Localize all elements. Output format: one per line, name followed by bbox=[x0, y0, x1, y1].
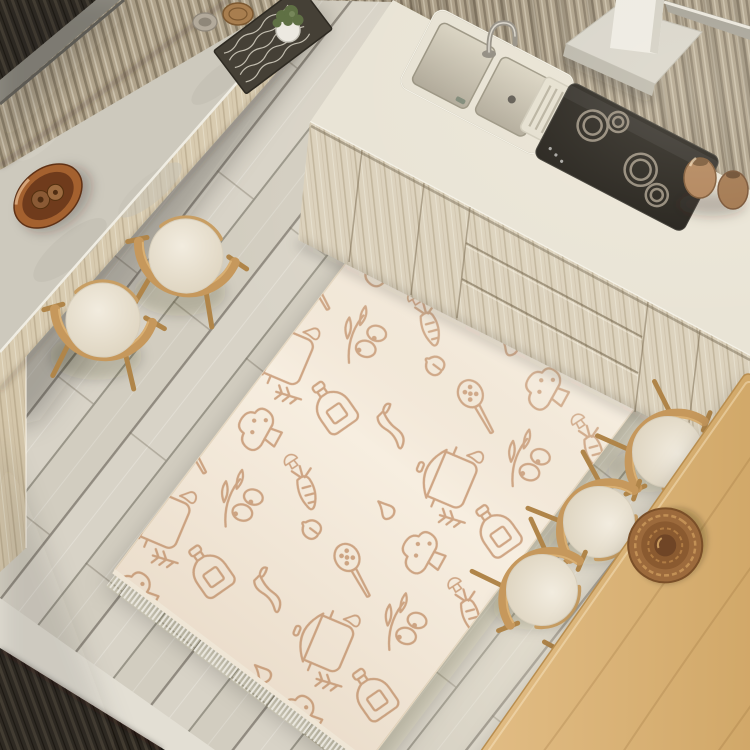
foliage-highlight bbox=[289, 11, 295, 17]
basket-body bbox=[223, 3, 253, 25]
basket bbox=[223, 3, 253, 25]
scene-render bbox=[0, 0, 750, 750]
stone-mortar bbox=[193, 13, 217, 31]
kitchen-scene bbox=[0, 0, 750, 750]
mortar-inside bbox=[199, 18, 212, 27]
